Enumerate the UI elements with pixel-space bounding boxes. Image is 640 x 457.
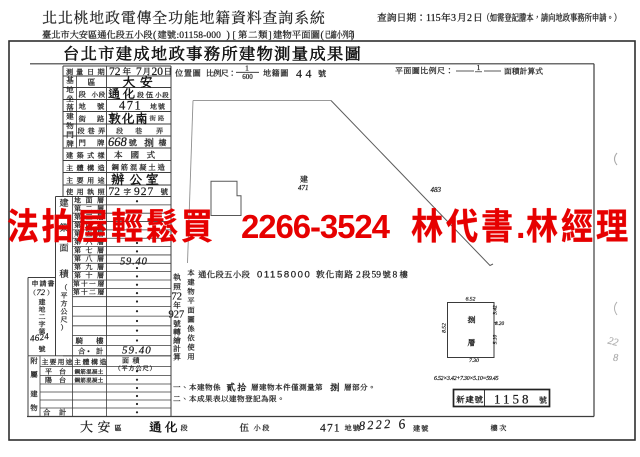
svg-text:668: 668 — [108, 135, 128, 149]
svg-text:3: 3 — [451, 13, 456, 24]
svg-text:115: 115 — [426, 13, 441, 24]
svg-text:483: 483 — [431, 186, 442, 194]
svg-text:72: 72 — [109, 186, 121, 198]
svg-text:2266-3524: 2266-3524 — [241, 208, 391, 245]
svg-text:59.40: 59.40 — [120, 256, 148, 267]
svg-text:471: 471 — [320, 423, 341, 435]
svg-text:59.40: 59.40 — [122, 345, 152, 357]
svg-text:2: 2 — [356, 271, 361, 281]
svg-text:72: 72 — [109, 66, 121, 78]
svg-text:[: [ — [233, 31, 236, 41]
svg-text:.: . — [516, 208, 525, 246]
svg-text:8.20: 8.20 — [495, 321, 504, 327]
svg-text:927: 927 — [169, 310, 185, 321]
svg-text:72: 72 — [37, 287, 46, 297]
svg-text:): ) — [227, 30, 230, 41]
svg-text::01158-000: :01158-000 — [177, 31, 222, 41]
svg-text:600: 600 — [242, 73, 253, 81]
svg-text:): ) — [351, 30, 354, 41]
svg-text:8222: 8222 — [358, 417, 393, 433]
svg-text:927: 927 — [134, 186, 154, 198]
svg-text:471: 471 — [119, 99, 142, 113]
svg-text:6.52×3.42+7.30×5.10=59.45: 6.52×3.42+7.30×5.10=59.45 — [434, 375, 499, 382]
svg-text:20: 20 — [152, 66, 164, 78]
svg-text:7.30: 7.30 — [469, 358, 479, 364]
svg-text:471: 471 — [298, 184, 309, 192]
svg-text:1: 1 — [245, 64, 249, 73]
svg-text:59: 59 — [372, 271, 382, 281]
svg-text:3.42: 3.42 — [493, 305, 499, 316]
svg-text:8.52: 8.52 — [442, 323, 448, 333]
svg-text:1158: 1158 — [494, 392, 532, 407]
svg-text:44: 44 — [296, 67, 315, 81]
svg-text:7: 7 — [136, 66, 142, 78]
svg-text:72: 72 — [172, 292, 183, 303]
svg-text:6.52: 6.52 — [466, 297, 476, 303]
svg-text:2: 2 — [467, 13, 472, 24]
svg-text:01158000: 01158000 — [257, 270, 311, 281]
svg-text:8: 8 — [393, 271, 398, 281]
svg-text:]: ] — [269, 31, 272, 41]
svg-text:5.10: 5.10 — [493, 334, 499, 344]
svg-text:8: 8 — [613, 353, 619, 364]
svg-text:1: 1 — [477, 63, 481, 72]
